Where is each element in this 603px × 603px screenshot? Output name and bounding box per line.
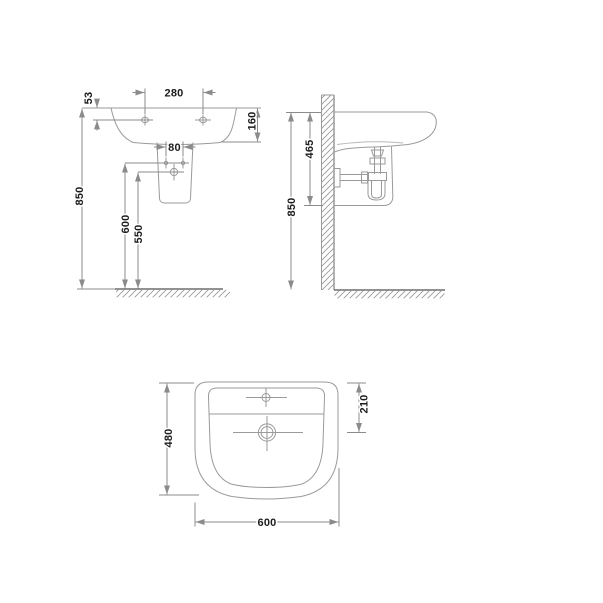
side-bowl-inner-line (337, 142, 403, 145)
trap-top-flange (372, 150, 384, 156)
front-floor-hatch (116, 290, 230, 298)
dim-label-plan-width: 600 (258, 517, 277, 529)
dim-label-front-bolt-spacing: 80 (168, 142, 181, 154)
side-view: 850 465 (286, 95, 445, 298)
side-basin-profile (334, 112, 436, 152)
dim-label-front-hole-offset: 53 (83, 92, 95, 105)
trap-bottle-body (368, 181, 385, 200)
trap-horizontal-pipe (340, 175, 368, 181)
side-wall-hatch (322, 95, 334, 290)
front-dimension-lines (77, 89, 261, 290)
plan-drain-hole (233, 416, 303, 451)
front-basin-body (111, 108, 237, 145)
front-view: 850 600 550 160 53 280 80 (74, 88, 261, 298)
dim-label-front-drain-height: 550 (133, 225, 145, 244)
trap-tailpipe (375, 147, 381, 174)
dim-label-side-height: 850 (286, 198, 298, 217)
side-floor-hatch (335, 291, 445, 299)
trap-upper-nut (370, 158, 385, 164)
washbasin-dimension-drawing: 850 600 550 160 53 280 80 (0, 0, 603, 603)
plan-dimension-lines (159, 383, 366, 527)
dim-label-plan-drain-offset: 210 (359, 395, 371, 414)
side-trap-plumbing (334, 147, 387, 200)
dim-label-front-hole-spacing: 280 (165, 88, 184, 100)
trap-bottle-inner (372, 181, 382, 198)
dim-label-side-rim-to-pedestal: 465 (304, 140, 316, 159)
plan-view: 480 210 600 (159, 382, 371, 529)
plan-basin-outline (195, 382, 338, 499)
trap-wall-flange (334, 169, 340, 188)
plan-tap-hole (246, 389, 287, 408)
dim-label-front-bolt-height: 600 (120, 215, 132, 234)
technical-drawing-canvas: 850 600 550 160 53 280 80 (0, 0, 603, 603)
plan-extension-lines (159, 383, 366, 527)
front-basin-outline (82, 108, 261, 203)
front-extension-lines (77, 89, 261, 290)
dim-label-front-height: 850 (74, 187, 86, 206)
dim-label-front-rim-depth: 160 (247, 112, 259, 131)
dim-label-plan-depth: 480 (163, 429, 175, 448)
trap-junction-nut (369, 173, 387, 181)
trap-pipe-nut (362, 172, 368, 183)
